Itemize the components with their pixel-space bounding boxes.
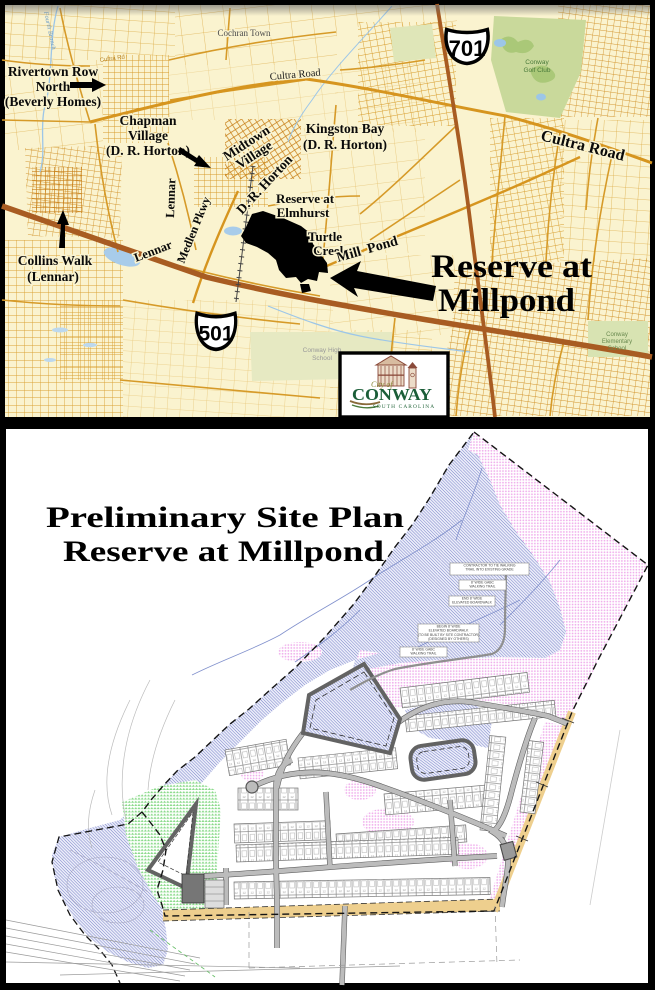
svg-text:Reserve at: Reserve at xyxy=(276,191,335,206)
svg-text:Elmhurst: Elmhurst xyxy=(277,205,330,220)
svg-text:Elementary: Elementary xyxy=(602,339,632,345)
svg-text:(Beverly Homes): (Beverly Homes) xyxy=(5,94,101,109)
svg-text:701: 701 xyxy=(449,36,486,61)
svg-text:Village: Village xyxy=(128,128,168,143)
svg-text:(DESIGNED BY OTHERS): (DESIGNED BY OTHERS) xyxy=(428,637,468,641)
svg-text:Reserve at: Reserve at xyxy=(431,249,592,285)
svg-text:WALKING TRAIL: WALKING TRAIL xyxy=(469,585,495,589)
svg-text:Lennar: Lennar xyxy=(163,178,178,219)
svg-text:Millpond: Millpond xyxy=(438,283,575,319)
svg-text:Kingston Bay: Kingston Bay xyxy=(306,121,385,136)
svg-text:(D. R. Horton): (D. R. Horton) xyxy=(303,137,387,152)
svg-text:Collins Walk: Collins Walk xyxy=(18,253,93,268)
svg-text:ELEVATED BOARDWALK: ELEVATED BOARDWALK xyxy=(452,601,492,605)
svg-text:(D. R. Horton): (D. R. Horton) xyxy=(106,143,190,158)
svg-text:CONWAY: CONWAY xyxy=(352,385,432,404)
svg-text:Turtle: Turtle xyxy=(308,229,342,244)
svg-text:Reserve at Millpond: Reserve at Millpond xyxy=(63,535,384,568)
svg-text:TRAIL INTO EXISTING GRADE: TRAIL INTO EXISTING GRADE xyxy=(465,568,514,572)
svg-text:Chapman: Chapman xyxy=(119,113,177,128)
svg-text:North: North xyxy=(36,79,71,94)
svg-text:Cochran Town: Cochran Town xyxy=(218,28,271,38)
svg-text:School: School xyxy=(312,355,332,362)
svg-text:Conway: Conway xyxy=(606,332,628,338)
svg-text:Conway High: Conway High xyxy=(303,347,342,354)
svg-text:Golf Club: Golf Club xyxy=(523,67,550,74)
svg-text:Conway: Conway xyxy=(525,59,549,66)
svg-text:SOUTH CAROLINA: SOUTH CAROLINA xyxy=(373,404,436,410)
svg-text:School: School xyxy=(608,346,626,352)
svg-text:Preliminary Site Plan: Preliminary Site Plan xyxy=(46,501,404,534)
svg-text:(Lennar): (Lennar) xyxy=(27,269,79,284)
svg-text:Rivertown Row: Rivertown Row xyxy=(8,64,99,79)
svg-text:501: 501 xyxy=(198,323,233,346)
svg-text:WALKING TRAIL: WALKING TRAIL xyxy=(410,652,436,656)
